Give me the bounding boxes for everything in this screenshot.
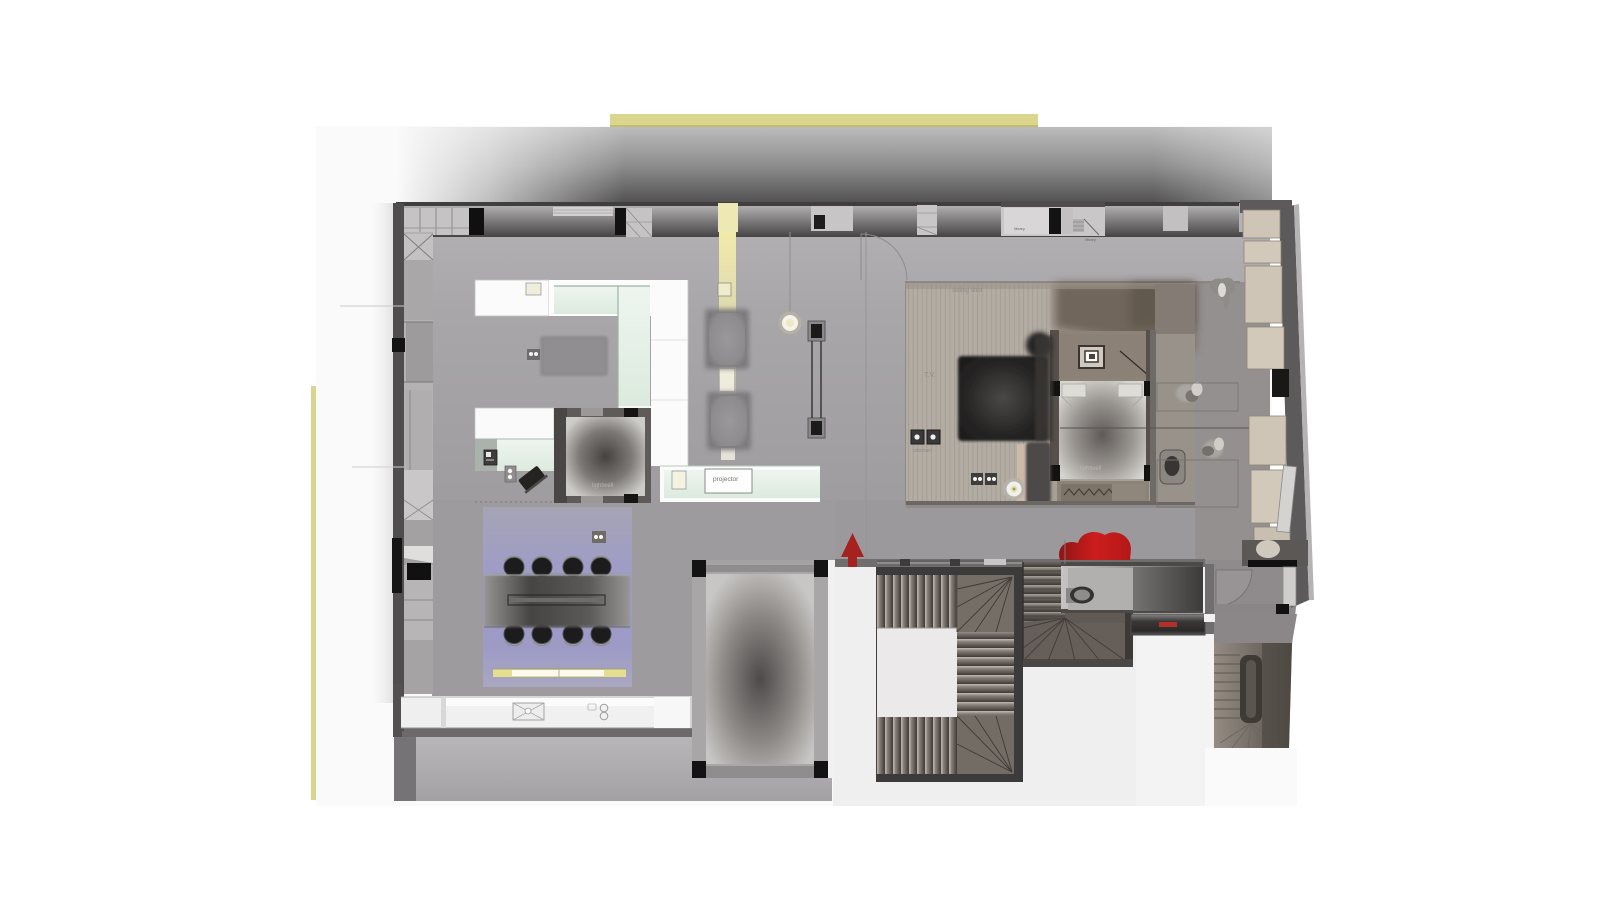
- svg-text:projector: projector: [713, 476, 739, 483]
- svg-text:T.V.: T.V.: [924, 372, 935, 379]
- svg-text:ottoman: ottoman: [913, 448, 931, 454]
- svg-text:sliding door: sliding door: [952, 288, 983, 294]
- svg-text:library: library: [1014, 226, 1025, 231]
- svg-text:lightwell: lightwell: [592, 483, 613, 489]
- svg-text:library: library: [1085, 237, 1096, 242]
- svg-text:lightwell: lightwell: [1080, 466, 1101, 472]
